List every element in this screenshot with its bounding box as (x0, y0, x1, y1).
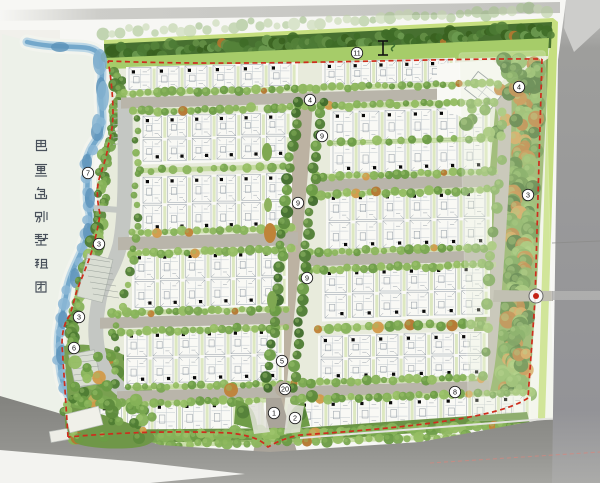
svg-text:1: 1 (272, 409, 276, 418)
svg-text:9: 9 (320, 132, 324, 141)
svg-text:2: 2 (293, 414, 297, 423)
svg-text:4: 4 (517, 83, 521, 92)
svg-text:20: 20 (281, 385, 289, 394)
svg-text:11: 11 (353, 49, 360, 58)
svg-text:5: 5 (280, 357, 284, 366)
svg-text:7: 7 (86, 169, 90, 178)
svg-text:8: 8 (453, 388, 457, 397)
svg-text:6: 6 (72, 344, 76, 353)
svg-text:4: 4 (308, 96, 312, 105)
svg-text:3: 3 (77, 313, 81, 322)
svg-text:9: 9 (305, 274, 309, 283)
svg-text:3: 3 (526, 191, 530, 200)
svg-text:9: 9 (296, 199, 300, 208)
svg-text:3: 3 (97, 240, 101, 249)
